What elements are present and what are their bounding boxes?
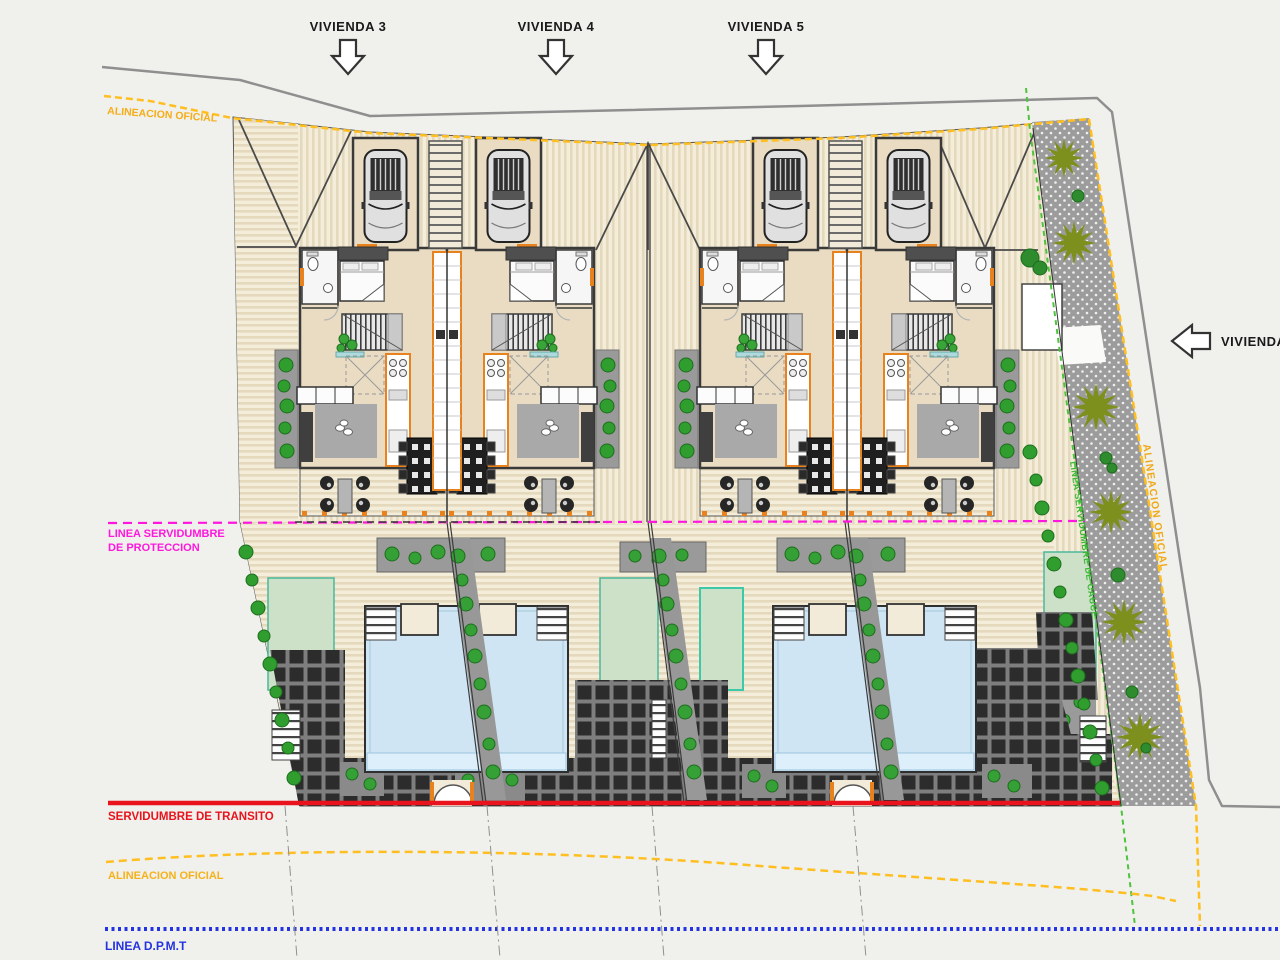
vivienda-3-label: VIVIENDA 3 — [310, 19, 387, 34]
vivienda-4-label: VIVIENDA 4 — [518, 19, 595, 34]
servidumbre-proteccion-label-2: DE PROTECCION — [108, 542, 200, 554]
alineacion-oficial-top-label: ALINEACION OFICIAL — [107, 105, 218, 125]
alineacion-oficial-bottom-label: ALINEACION OFICIAL — [108, 870, 224, 882]
site-plan-drawing: VIVIENDA 3 VIVIENDA 4 VIVIENDA 5 VIVIEND… — [0, 0, 1280, 960]
site-plan-canvas: VIVIENDA 3 VIVIENDA 4 VIVIENDA 5 VIVIEND… — [0, 0, 1280, 960]
vivienda-5-label: VIVIENDA 5 — [728, 19, 805, 34]
servidumbre-proteccion-label-1: LINEA SERVIDUMBRE — [108, 528, 225, 540]
down-arrow-icon — [332, 40, 364, 74]
projection-lines — [285, 806, 866, 958]
servidumbre-transito-label: SERVIDUMBRE DE TRANSITO — [108, 811, 274, 823]
down-arrow-icon — [540, 40, 572, 74]
entry-porch — [1022, 284, 1062, 350]
lawn — [700, 588, 743, 690]
left-arrow-icon — [1172, 325, 1210, 357]
vivienda-right-label: VIVIENDA — [1221, 334, 1280, 349]
down-arrow-icon — [750, 40, 782, 74]
lawn — [600, 578, 658, 686]
alineacion-oficial-bottom-line — [106, 852, 1176, 901]
linea-dpmt-label: LINEA D.P.M.T — [105, 939, 187, 953]
